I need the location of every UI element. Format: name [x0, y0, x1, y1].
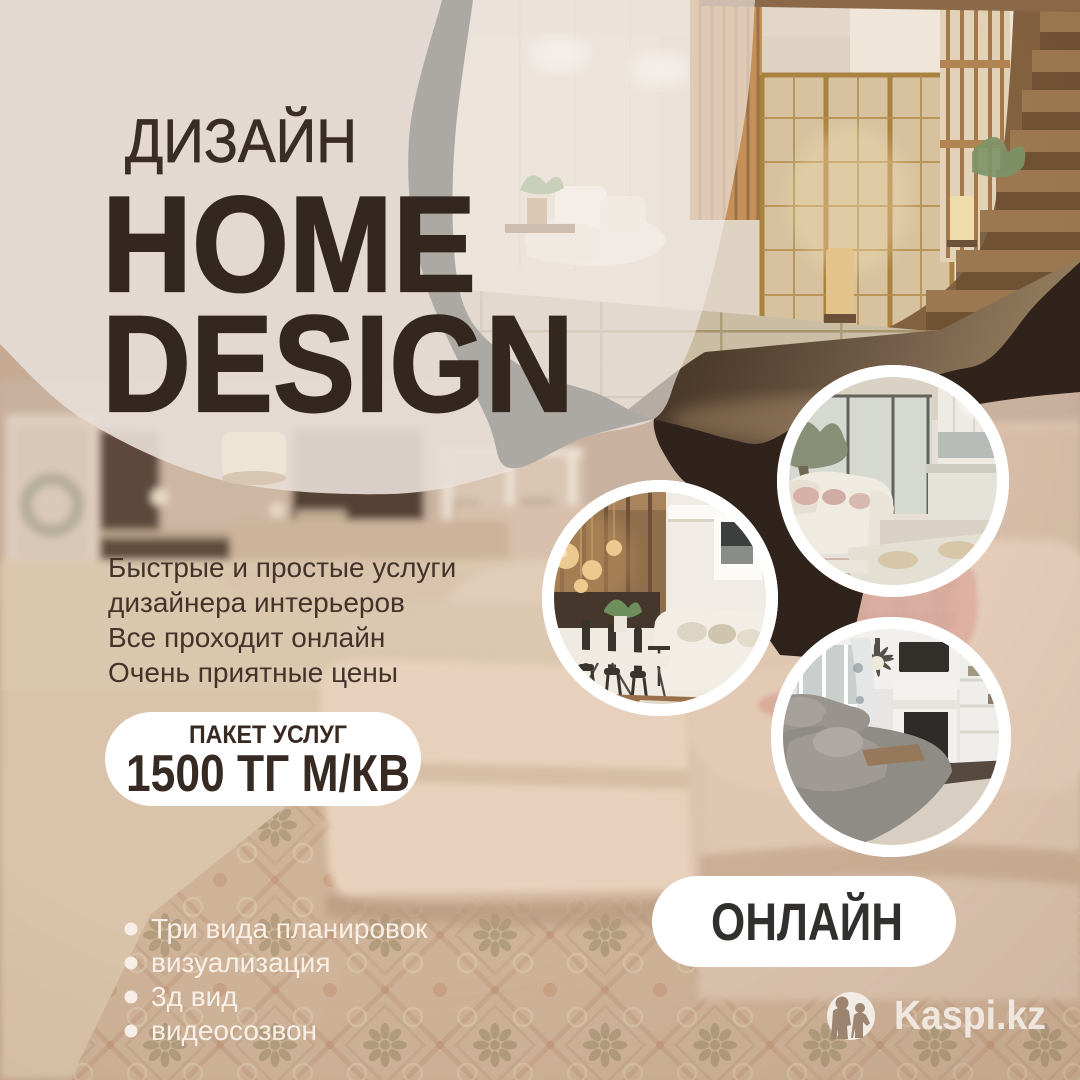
- svg-text:DESIGN: DESIGN: [102, 288, 574, 441]
- svg-text:Быстрые и простые услуги: Быстрые и простые услуги: [108, 552, 456, 583]
- svg-text:видеосозвон: видеосозвон: [151, 1015, 317, 1046]
- svg-text:Kaspi.kz: Kaspi.kz: [894, 992, 1046, 1038]
- svg-text:Очень приятные цены: Очень приятные цены: [108, 657, 398, 688]
- svg-text:Три вида планировок: Три вида планировок: [151, 913, 428, 944]
- svg-text:дизайнера интерьеров: дизайнера интерьеров: [108, 587, 405, 618]
- svg-text:ОНЛАЙН: ОНЛАЙН: [711, 891, 903, 952]
- svg-text:визуализация: визуализация: [151, 947, 331, 978]
- svg-text:ДИЗАЙН: ДИЗАЙН: [125, 106, 357, 175]
- svg-text:3д вид: 3д вид: [151, 981, 238, 1012]
- svg-text:1500 ТГ М/КВ: 1500 ТГ М/КВ: [126, 745, 410, 803]
- svg-text:Все проходит онлайн: Все проходит онлайн: [108, 622, 385, 653]
